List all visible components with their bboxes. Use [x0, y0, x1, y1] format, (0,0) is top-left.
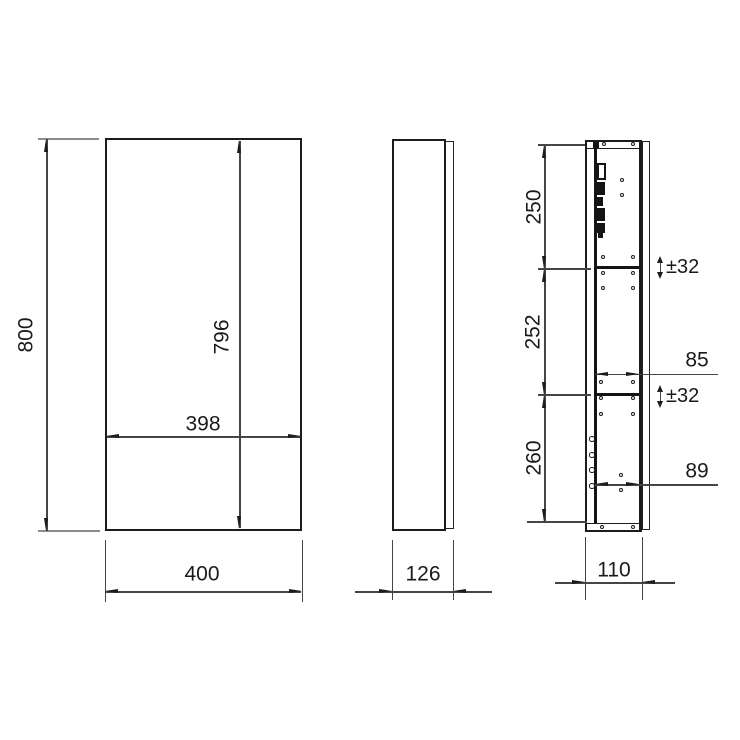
overall-height-label: 800	[16, 317, 37, 352]
top-compartment-label: 250	[524, 189, 545, 224]
overall-width-label: 400	[184, 564, 219, 585]
arrow-left-icon	[106, 434, 119, 438]
shelf-tolerance-lower-label: ±32	[666, 386, 699, 406]
arrow-down-icon	[237, 516, 241, 529]
arrow-left-icon	[595, 372, 608, 376]
dim-line-89	[595, 484, 718, 485]
shelf-upper	[597, 266, 639, 269]
arrow-left-icon	[595, 482, 608, 486]
overall-depth-label: 126	[405, 564, 440, 585]
arrow-right-icon	[289, 589, 302, 593]
shelf-tolerance-upper-label: ±32	[666, 257, 699, 277]
extension-line	[527, 521, 587, 522]
arrow-up-icon	[44, 139, 48, 152]
arrow-down-icon	[44, 518, 48, 531]
arrow-left-icon	[105, 589, 118, 593]
rail-top-fitting	[593, 142, 599, 149]
arrow-right-icon	[626, 482, 639, 486]
arrow-down-icon	[542, 256, 546, 269]
extension-line	[585, 537, 586, 600]
arrow-right-icon	[572, 580, 585, 584]
dim-line-398	[107, 436, 300, 438]
arrow-up-icon	[542, 395, 546, 408]
arrow-down-icon	[542, 382, 546, 395]
arrow-up-icon	[542, 145, 546, 158]
carcass-depth-label: 110	[597, 560, 630, 581]
bottom-compartment-label: 260	[524, 440, 545, 475]
dim-line-800	[46, 139, 48, 531]
dim-line-796	[239, 141, 241, 528]
extension-line	[642, 537, 643, 600]
inner-width-label: 398	[185, 414, 220, 435]
dim-line-400	[106, 591, 301, 593]
front-inner-face-line	[639, 141, 640, 531]
cabinet-side-outline	[392, 139, 446, 531]
arrow-up-icon	[237, 140, 241, 153]
cabinet-technical-drawing: 800 796 398 400 126	[0, 0, 740, 740]
arrow-down-icon	[542, 509, 546, 522]
arrow-right-icon	[626, 372, 639, 376]
inner-height-label: 796	[212, 319, 233, 354]
dim-line-85	[595, 374, 718, 375]
dim-line-126	[355, 591, 492, 593]
arrow-up-icon	[542, 269, 546, 282]
inner-depth-lower-label: 89	[685, 461, 708, 482]
door-edge-outline	[445, 141, 454, 529]
door-edge-outline	[642, 141, 650, 530]
arrow-left-icon	[453, 589, 466, 593]
arrow-right-icon	[288, 434, 301, 438]
inner-depth-upper-label: 85	[685, 350, 708, 371]
arrow-left-icon	[642, 580, 655, 584]
cabinet-front-outline	[105, 138, 302, 531]
arrow-right-icon	[379, 589, 392, 593]
middle-compartment-label: 252	[523, 314, 544, 349]
